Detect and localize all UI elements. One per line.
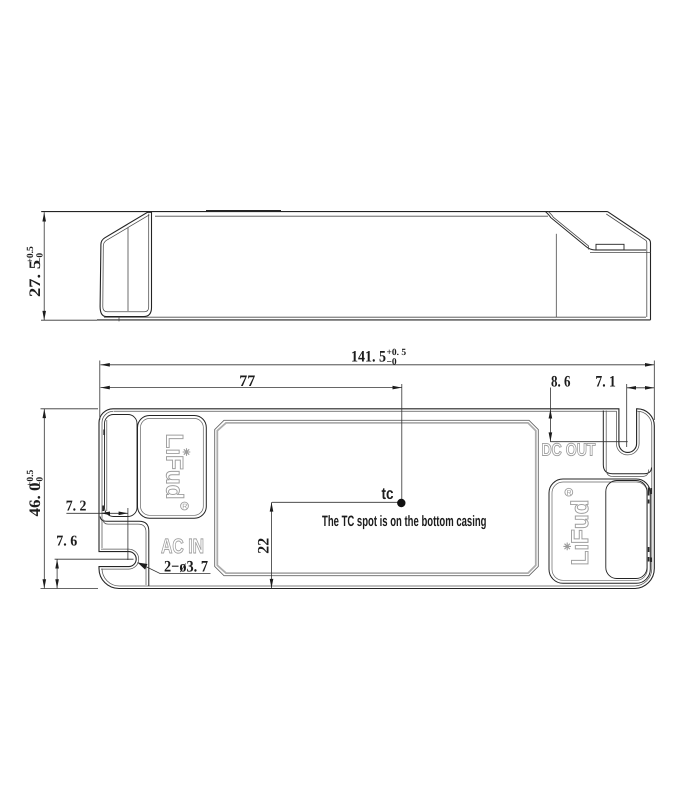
svg-text:+0. 5: +0. 5	[387, 348, 407, 358]
svg-text:+0.5: +0.5	[26, 469, 36, 487]
svg-text:7. 1: 7. 1	[595, 374, 616, 391]
svg-text:R: R	[567, 490, 572, 497]
svg-text:22: 22	[256, 538, 273, 554]
svg-text:+0.5: +0.5	[26, 246, 36, 264]
svg-text:−0: −0	[36, 477, 46, 487]
svg-text:LıFud: LıFud	[567, 500, 594, 566]
svg-text:77: 77	[239, 373, 255, 390]
svg-text:DC OUT: DC OUT	[542, 440, 596, 460]
svg-text:−0: −0	[387, 358, 397, 368]
svg-text:R: R	[182, 504, 187, 511]
svg-text:AC IN: AC IN	[161, 535, 204, 558]
svg-text:7. 6: 7. 6	[56, 534, 77, 550]
svg-text:141. 5: 141. 5	[351, 349, 386, 366]
svg-text:8. 6: 8. 6	[551, 373, 571, 390]
svg-text:LıFud: LıFud	[161, 434, 188, 500]
svg-text:7. 2: 7. 2	[66, 499, 87, 515]
svg-text:−0: −0	[36, 253, 46, 263]
svg-text:27. 5: 27. 5	[27, 260, 44, 297]
svg-text:The TC spot is on the bottom c: The TC spot is on the bottom casing	[322, 513, 487, 530]
svg-text:2−ø3. 7: 2−ø3. 7	[164, 559, 208, 576]
svg-text:tc: tc	[382, 485, 394, 503]
